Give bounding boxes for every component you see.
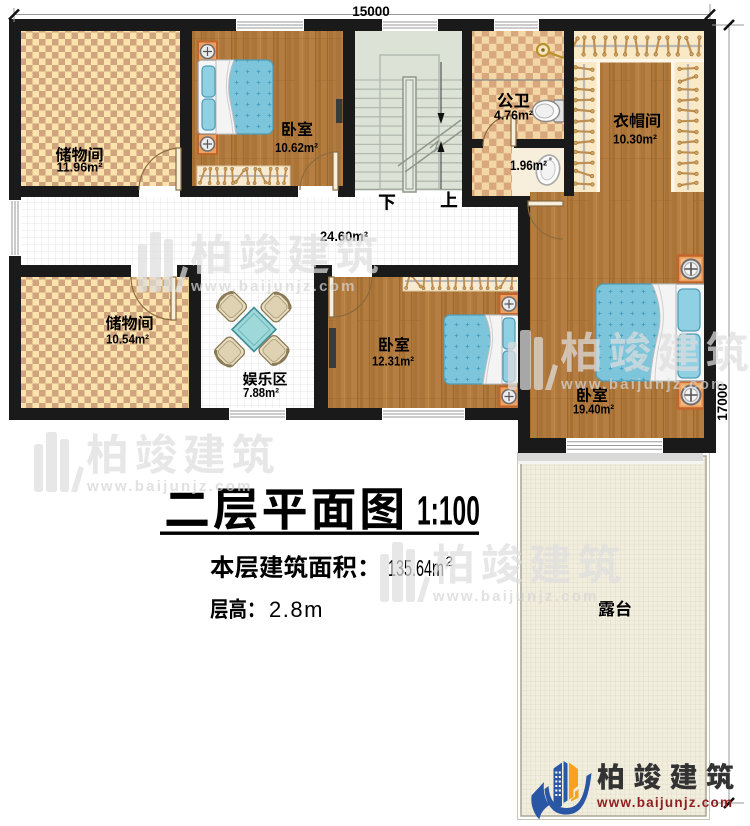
svg-text:10.30m²: 10.30m² [613, 133, 657, 147]
svg-text:www.baijunjz.com: www.baijunjz.com [596, 795, 733, 810]
svg-text:12.31m²: 12.31m² [372, 355, 414, 369]
svg-text:11.96m²: 11.96m² [57, 161, 103, 175]
svg-text:1.96m²: 1.96m² [510, 158, 547, 173]
svg-text:10.62m²: 10.62m² [275, 141, 318, 155]
svg-text:1:100: 1:100 [417, 488, 480, 534]
svg-text:7.88m²: 7.88m² [243, 386, 279, 400]
svg-text:10.54m²: 10.54m² [106, 333, 149, 347]
svg-text:19.40m²: 19.40m² [573, 403, 614, 417]
svg-text:2.8m: 2.8m [269, 597, 324, 622]
svg-text:15000: 15000 [352, 4, 390, 19]
svg-text:4.76m²: 4.76m² [494, 109, 533, 123]
